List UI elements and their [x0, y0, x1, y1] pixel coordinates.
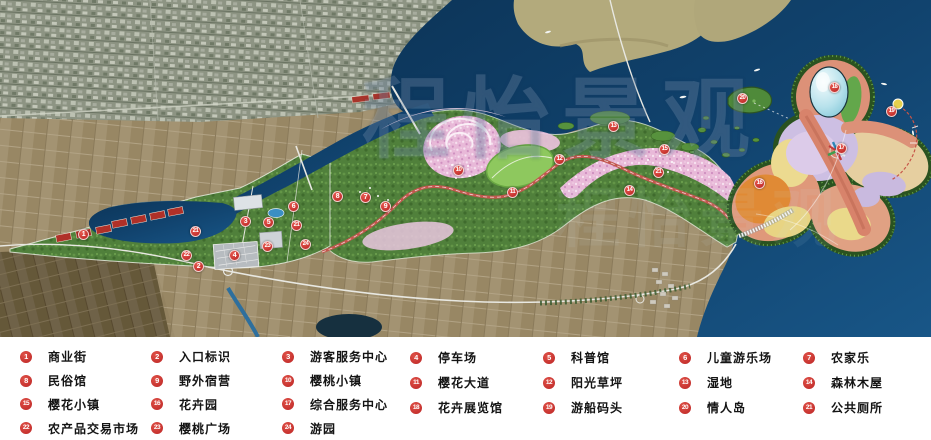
legend-item-label: 农产品交易市场 — [48, 420, 139, 437]
legend-number-badge: 16 — [151, 398, 163, 410]
legend-item-5: 5科普馆 — [543, 345, 679, 370]
map-marker-24: 24 — [300, 239, 311, 250]
map-marker-1: 1 — [78, 229, 89, 240]
map-marker-6: 6 — [288, 201, 299, 212]
legend-item-24: 24游园 — [282, 416, 410, 440]
legend-item-label: 游客服务中心 — [310, 348, 388, 365]
legend-item-14: 14森林木屋 — [803, 370, 913, 395]
legend-item-10: 10樱桃小镇 — [282, 369, 410, 393]
legend-number-badge: 6 — [679, 352, 691, 364]
legend-item-11: 11樱花大道 — [410, 370, 543, 395]
map-marker-22: 22 — [181, 250, 192, 261]
legend-column-3: 3游客服务中心10樱桃小镇17综合服务中心24游园 — [282, 345, 410, 440]
legend-item-label: 停车场 — [438, 349, 477, 366]
legend-item-label: 阳光草坪 — [571, 374, 623, 391]
legend-item-label: 入口标识 — [179, 348, 231, 365]
legend-item-label: 野外宿营 — [179, 372, 231, 389]
legend-item-label: 商业街 — [48, 348, 87, 365]
map-marker-7: 7 — [360, 192, 371, 203]
legend-item-9: 9野外宿营 — [151, 369, 282, 393]
map-marker-8: 8 — [332, 191, 343, 202]
legend-number-badge: 20 — [679, 402, 691, 414]
map-marker-13: 13 — [608, 121, 619, 132]
legend-item-16: 16花卉园 — [151, 393, 282, 417]
map-marker-2: 2 — [193, 261, 204, 272]
legend-item-7: 7农家乐 — [803, 345, 913, 370]
map-marker-9: 9 — [380, 201, 391, 212]
map-marker-21: 21 — [190, 226, 201, 237]
legend-item-21: 21公共厕所 — [803, 395, 913, 420]
legend-item-6: 6儿童游乐场 — [679, 345, 803, 370]
legend-item-label: 湿地 — [707, 374, 733, 391]
legend-number-badge: 19 — [543, 402, 555, 414]
map-marker-20: 20 — [737, 93, 748, 104]
legend-number-badge: 4 — [410, 352, 422, 364]
legend-number-badge: 10 — [282, 375, 294, 387]
legend-item-label: 花卉展览馆 — [438, 399, 503, 416]
legend-item-13: 13湿地 — [679, 370, 803, 395]
legend-column-2: 2入口标识9野外宿营16花卉园23樱桃广场 — [151, 345, 282, 440]
map-marker-14: 14 — [624, 185, 635, 196]
legend-item-label: 民俗馆 — [48, 372, 87, 389]
legend-number-badge: 3 — [282, 351, 294, 363]
legend-column-7: 7农家乐14森林木屋21公共厕所 — [803, 345, 913, 440]
legend-number-badge: 21 — [803, 402, 815, 414]
legend-column-4: 4停车场11樱花大道18花卉展览馆 — [410, 345, 543, 440]
legend-number-badge: 11 — [410, 377, 422, 389]
map-marker-18: 18 — [829, 82, 840, 93]
legend-item-label: 公共厕所 — [831, 399, 883, 416]
legend-item-label: 儿童游乐场 — [707, 349, 772, 366]
map-marker-21: 21 — [291, 220, 302, 231]
legend-item-12: 12阳光草坪 — [543, 370, 679, 395]
legend: 1商业街8民俗馆15樱花小镇22农产品交易市场2入口标识9野外宿营16花卉园23… — [0, 337, 931, 440]
legend-item-label: 游园 — [310, 420, 336, 437]
map-marker-4: 4 — [229, 250, 240, 261]
legend-item-23: 23樱桃广场 — [151, 416, 282, 440]
legend-item-19: 19游船码头 — [543, 395, 679, 420]
legend-column-5: 5科普馆12阳光草坪19游船码头 — [543, 345, 679, 440]
legend-item-label: 情人岛 — [707, 399, 746, 416]
legend-item-3: 3游客服务中心 — [282, 345, 410, 369]
legend-item-label: 樱花小镇 — [48, 396, 100, 413]
legend-item-4: 4停车场 — [410, 345, 543, 370]
legend-number-badge: 8 — [20, 375, 32, 387]
map-marker-16: 16 — [754, 178, 765, 189]
legend-column-6: 6儿童游乐场13湿地20情人岛 — [679, 345, 803, 440]
legend-item-1: 1商业街 — [20, 345, 151, 369]
legend-item-label: 农家乐 — [831, 349, 870, 366]
legend-item-22: 22农产品交易市场 — [20, 416, 151, 440]
legend-number-badge: 23 — [151, 422, 163, 434]
legend-item-8: 8民俗馆 — [20, 369, 151, 393]
legend-number-badge: 15 — [20, 398, 32, 410]
legend-number-badge: 2 — [151, 351, 163, 363]
map-marker-3: 3 — [240, 216, 251, 227]
map-marker-15: 15 — [659, 144, 670, 155]
legend-column-1: 1商业街8民俗馆15樱花小镇22农产品交易市场 — [20, 345, 151, 440]
legend-number-badge: 9 — [151, 375, 163, 387]
legend-item-label: 游船码头 — [571, 399, 623, 416]
legend-item-label: 花卉园 — [179, 396, 218, 413]
legend-item-15: 15樱花小镇 — [20, 393, 151, 417]
map-marker-11: 11 — [507, 187, 518, 198]
map-marker-17: 17 — [836, 143, 847, 154]
legend-number-badge: 14 — [803, 377, 815, 389]
satellite-plan-image — [0, 0, 931, 337]
map-marker-10: 10 — [453, 165, 464, 176]
legend-item-17: 17综合服务中心 — [282, 393, 410, 417]
legend-item-20: 20情人岛 — [679, 395, 803, 420]
legend-item-label: 樱桃小镇 — [310, 372, 362, 389]
map-marker-21: 21 — [653, 167, 664, 178]
legend-item-label: 樱桃广场 — [179, 420, 231, 437]
map-marker-12: 12 — [554, 154, 565, 165]
legend-number-badge: 13 — [679, 377, 691, 389]
legend-number-badge: 12 — [543, 377, 555, 389]
legend-number-badge: 22 — [20, 422, 32, 434]
legend-item-2: 2入口标识 — [151, 345, 282, 369]
legend-item-18: 18花卉展览馆 — [410, 395, 543, 420]
lovers-island — [728, 87, 772, 113]
masterplan-screenshot: 程怡景观 程怡景观 123456789101112131415161718192… — [0, 0, 931, 440]
legend-number-badge: 17 — [282, 398, 294, 410]
legend-number-badge: 18 — [410, 402, 422, 414]
map-marker-19: 19 — [886, 106, 897, 117]
legend-item-label: 科普馆 — [571, 349, 610, 366]
legend-number-badge: 5 — [543, 352, 555, 364]
map-marker-5: 5 — [263, 217, 274, 228]
legend-item-label: 综合服务中心 — [310, 396, 388, 413]
legend-item-label: 樱花大道 — [438, 374, 490, 391]
legend-number-badge: 24 — [282, 422, 294, 434]
legend-item-label: 森林木屋 — [831, 374, 883, 391]
map-marker-23: 23 — [262, 241, 273, 252]
legend-number-badge: 1 — [20, 351, 32, 363]
legend-number-badge: 7 — [803, 352, 815, 364]
masterplan-map: 程怡景观 程怡景观 123456789101112131415161718192… — [0, 0, 931, 337]
